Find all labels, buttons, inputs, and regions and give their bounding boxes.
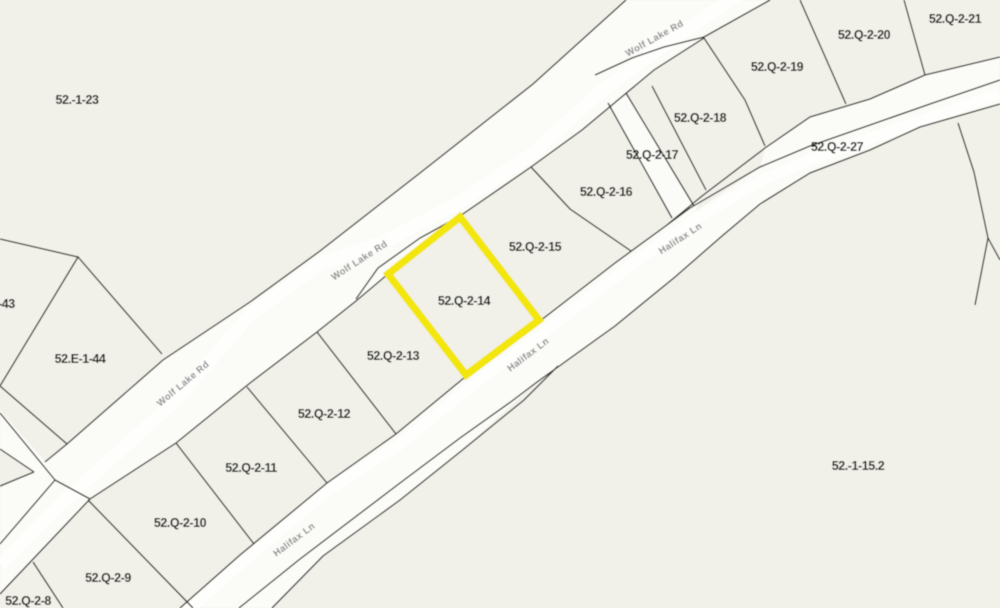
svg-text:52.Q-2-21: 52.Q-2-21	[929, 12, 982, 26]
svg-text:52.Q-2-12: 52.Q-2-12	[298, 407, 351, 421]
svg-text:52.Q-2-16: 52.Q-2-16	[580, 185, 633, 199]
svg-text:52.Q-2-13: 52.Q-2-13	[367, 349, 420, 363]
svg-text:52.E-1-44: 52.E-1-44	[55, 352, 106, 366]
svg-text:52.Q-2-19: 52.Q-2-19	[751, 60, 804, 74]
svg-text:52.-1-15.2: 52.-1-15.2	[832, 459, 885, 473]
svg-text:52.-1-23: 52.-1-23	[56, 93, 99, 107]
svg-text:52.Q-2-11: 52.Q-2-11	[225, 461, 277, 475]
svg-text:52.Q-2-20: 52.Q-2-20	[838, 28, 891, 42]
svg-text:52.Q-2-18: 52.Q-2-18	[674, 111, 727, 125]
svg-text:52.Q-2-10: 52.Q-2-10	[154, 516, 207, 530]
svg-text:-43: -43	[0, 297, 15, 311]
svg-text:52.Q-2-17: 52.Q-2-17	[626, 148, 679, 162]
svg-text:52.Q-2-27: 52.Q-2-27	[811, 140, 864, 154]
svg-text:52.Q-2-14: 52.Q-2-14	[438, 294, 491, 308]
svg-text:52.Q-2-9: 52.Q-2-9	[85, 571, 131, 585]
svg-text:52.Q-2-15: 52.Q-2-15	[509, 240, 562, 254]
svg-text:52.Q-2-8: 52.Q-2-8	[5, 594, 51, 608]
